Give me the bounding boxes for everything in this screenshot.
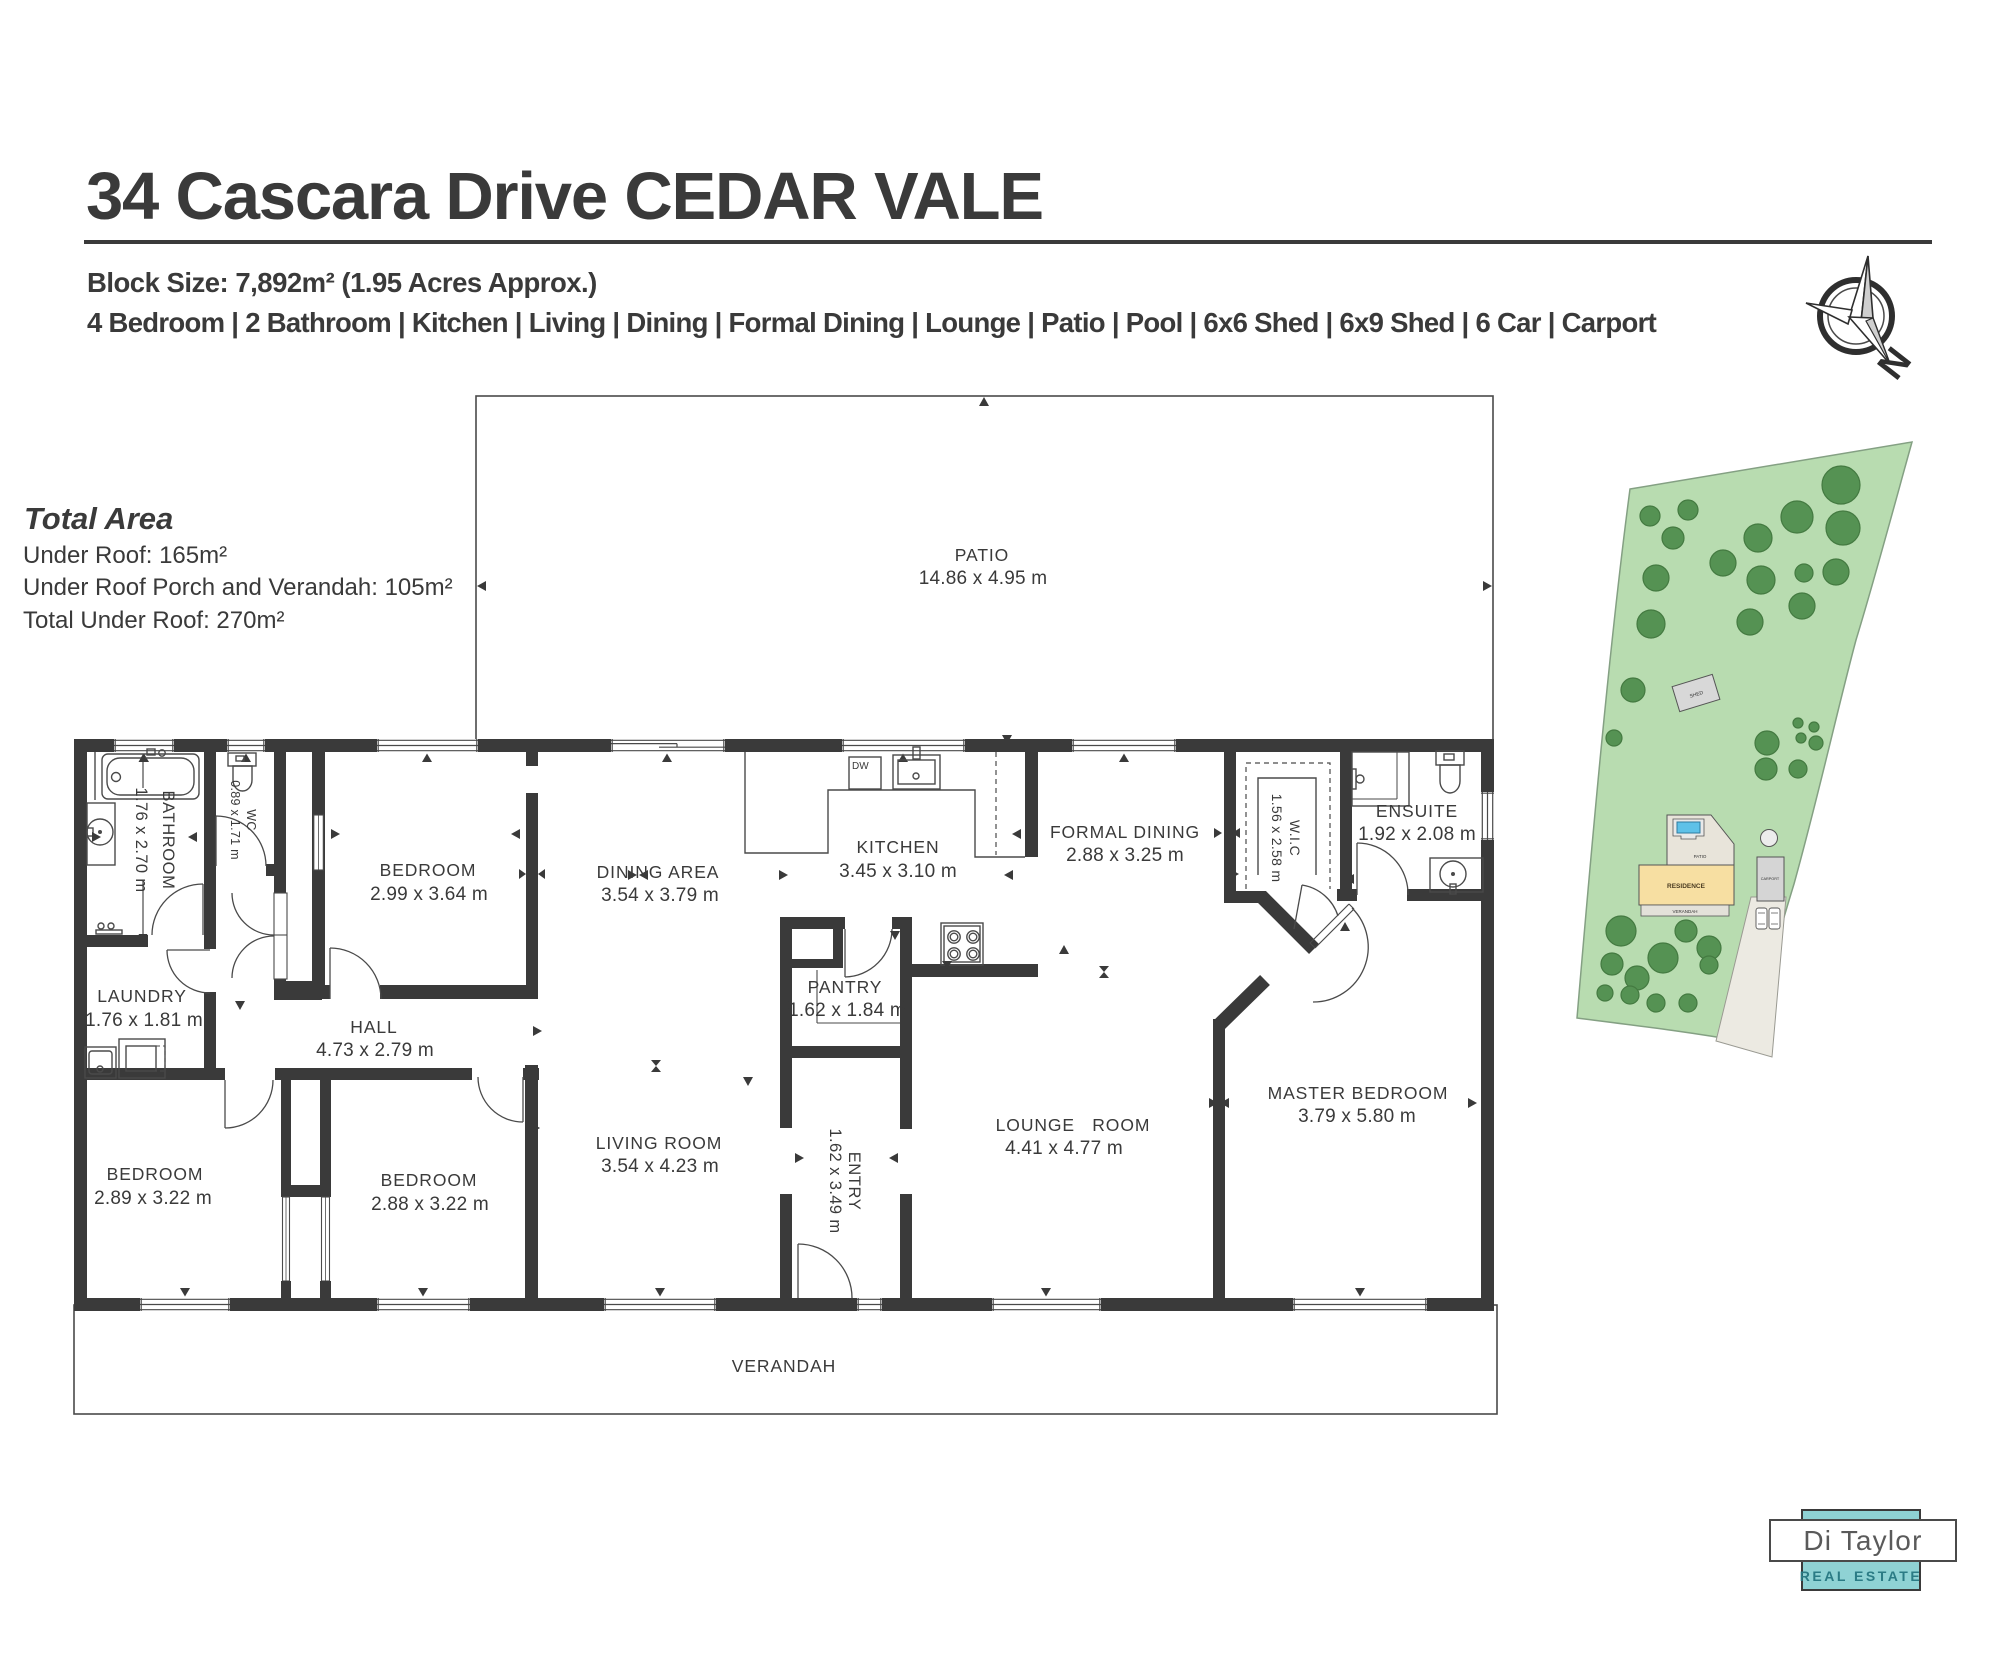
svg-text:Total Under Roof: 270m²: Total Under Roof: 270m² [23, 607, 284, 634]
svg-text:Total Area: Total Area [24, 501, 173, 536]
svg-text:1.92 x 2.08 m: 1.92 x 2.08 m [1358, 824, 1476, 845]
svg-text:ENSUITE: ENSUITE [1376, 801, 1458, 821]
svg-text:2.88 x 3.22 m: 2.88 x 3.22 m [371, 1194, 489, 1215]
svg-text:1.62 x 3.49 m: 1.62 x 3.49 m [826, 1128, 844, 1233]
svg-text:Di Taylor: Di Taylor [1803, 1525, 1922, 1556]
svg-text:CARPORT: CARPORT [1761, 877, 1780, 881]
svg-text:PATIO: PATIO [955, 545, 1009, 565]
svg-text:HALL: HALL [350, 1017, 397, 1037]
svg-text:VERANDAH: VERANDAH [732, 1356, 836, 1376]
svg-text:3.45 x 3.10 m: 3.45 x 3.10 m [839, 861, 957, 882]
svg-text:4.73 x 2.79 m: 4.73 x 2.79 m [316, 1040, 434, 1061]
svg-text:RESIDENCE: RESIDENCE [1667, 883, 1706, 890]
svg-text:4.41 x 4.77 m: 4.41 x 4.77 m [1005, 1138, 1123, 1159]
svg-text:1.56 x 2.58 m: 1.56 x 2.58 m [1269, 794, 1285, 883]
svg-text:2.99 x 3.64 m: 2.99 x 3.64 m [370, 884, 488, 905]
svg-text:BEDROOM: BEDROOM [381, 1170, 478, 1190]
svg-text:0.89 x 1.71 m: 0.89 x 1.71 m [228, 780, 242, 860]
svg-text:14.86 x 4.95 m: 14.86 x 4.95 m [919, 568, 1048, 589]
svg-text:Under Roof Porch and Verandah:: Under Roof Porch and Verandah: 105m² [23, 574, 453, 601]
svg-text:DINING AREA: DINING AREA [597, 862, 720, 882]
svg-text:2.88 x 3.25 m: 2.88 x 3.25 m [1066, 845, 1184, 866]
svg-text:3.54 x 3.79 m: 3.54 x 3.79 m [601, 885, 719, 906]
svg-text:LIVING ROOM: LIVING ROOM [596, 1133, 723, 1153]
svg-text:FORMAL DINING: FORMAL DINING [1050, 822, 1200, 842]
svg-text:2.89 x 3.22 m: 2.89 x 3.22 m [94, 1188, 212, 1209]
svg-text:PANTRY: PANTRY [808, 977, 883, 997]
svg-text:BEDROOM: BEDROOM [380, 860, 477, 880]
svg-text:W.I.C: W.I.C [1287, 820, 1303, 856]
svg-text:VERANDAH: VERANDAH [1672, 909, 1697, 914]
svg-text:ENTRY: ENTRY [845, 1152, 863, 1211]
svg-text:PATIO: PATIO [1694, 854, 1707, 859]
svg-text:DW: DW [852, 761, 869, 772]
svg-text:BEDROOM: BEDROOM [107, 1164, 204, 1184]
svg-text:4 Bedroom | 2 Bathroom | Kitch: 4 Bedroom | 2 Bathroom | Kitchen | Livin… [87, 307, 1657, 338]
svg-text:LAUNDRY: LAUNDRY [97, 986, 187, 1006]
svg-text:1.76 x 1.81 m: 1.76 x 1.81 m [85, 1010, 203, 1031]
svg-text:KITCHEN: KITCHEN [856, 837, 939, 857]
svg-text:1.62 x 1.84 m: 1.62 x 1.84 m [788, 1000, 906, 1021]
svg-text:Under Roof: 165m²: Under Roof: 165m² [23, 542, 227, 569]
svg-text:3.79 x 5.80 m: 3.79 x 5.80 m [1298, 1106, 1416, 1127]
svg-text:LOUNGE ROOM: LOUNGE ROOM [996, 1115, 1151, 1135]
svg-text:3.54 x 4.23 m: 3.54 x 4.23 m [601, 1156, 719, 1177]
svg-text:Block Size: 7,892m² (1.95 Acre: Block Size: 7,892m² (1.95 Acres Approx.) [87, 267, 597, 298]
svg-text:WC: WC [244, 809, 258, 831]
svg-text:REAL ESTATE: REAL ESTATE [1800, 1568, 1922, 1584]
svg-text:MASTER BEDROOM: MASTER BEDROOM [1268, 1083, 1449, 1103]
svg-text:1.76 x 2.70 m: 1.76 x 2.70 m [132, 787, 150, 892]
svg-text:BATHROOM: BATHROOM [159, 791, 177, 890]
svg-text:34 Cascara Drive CEDAR VALE: 34 Cascara Drive CEDAR VALE [86, 159, 1043, 234]
